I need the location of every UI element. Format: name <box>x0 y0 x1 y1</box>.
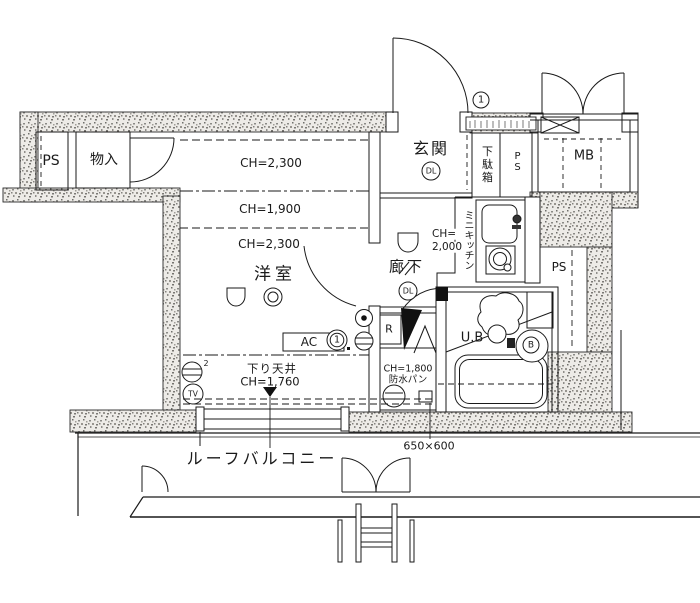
wall-right-block <box>540 192 612 247</box>
kitchen-sink <box>482 205 517 243</box>
outlet-count-label: 2 <box>203 360 208 368</box>
basin-faucet-icon <box>507 338 515 348</box>
black-square-icon <box>436 287 448 301</box>
hall-ch-line1: CH= <box>431 229 457 240</box>
sensor-icon-room <box>227 288 245 306</box>
laundry-ch-label: CH=1,800 <box>384 364 433 374</box>
balcony-doors <box>342 458 410 492</box>
vanity-counter <box>527 292 553 328</box>
roof-balcony-label: ルーフバルコニー <box>187 451 338 467</box>
pan-size-label: 650×600 <box>403 441 454 452</box>
ps-shaft-label: PS <box>512 151 522 173</box>
hallway-label: 廊下 <box>389 260 425 275</box>
mb-doors <box>542 73 624 114</box>
ladder-rail-outer-left <box>338 520 342 562</box>
entrance-door <box>393 38 468 113</box>
ch-mid-label: CH=1,900 <box>239 203 301 215</box>
sink-faucet-base-icon <box>512 225 521 229</box>
ps-left-label: PS <box>42 154 59 168</box>
dropped-ceiling-label: 下り天井 <box>247 363 297 375</box>
floor-plan: PS 物入 CH=2,300 CH=1,900 CH=2,300 洋室 玄関 D… <box>0 0 700 603</box>
dropped-ceiling-ch-label: CH=1,760 <box>240 376 299 388</box>
ac-note-label: 1 <box>334 335 340 345</box>
small-mark-icon <box>347 347 350 350</box>
fridge-note-label: R <box>385 324 393 335</box>
burner-knob-icon <box>504 264 511 271</box>
room-door-swing <box>304 246 356 306</box>
ladder-rail-right <box>392 504 397 562</box>
entrance-label: 玄関 <box>413 141 449 157</box>
ceiling-marker-icon <box>263 387 277 397</box>
balcony-side-door <box>142 466 168 492</box>
bathtub-inner <box>460 360 543 404</box>
vent-box <box>541 117 579 133</box>
outlet-left-icon <box>182 362 202 382</box>
laundry-pan-label: 防水パン <box>389 375 427 385</box>
bath-note-icon: B <box>523 337 540 354</box>
outlet-lines-icon <box>355 332 373 350</box>
entrance-downlight-icon: DL <box>422 162 441 181</box>
window-bracket-right <box>341 407 349 431</box>
ch-lower-label: CH=2,300 <box>238 238 300 250</box>
wall-step-left <box>3 188 180 202</box>
nameplate-box <box>466 117 536 130</box>
ps-right-label: PS <box>552 261 567 273</box>
wall-top <box>20 112 392 132</box>
ladder <box>338 504 414 562</box>
ladder-rung-1 <box>361 528 392 533</box>
sink-faucet-icon <box>513 215 521 223</box>
window-sliding <box>204 409 341 429</box>
casework <box>36 120 630 412</box>
ladder-rung-2 <box>361 542 392 547</box>
entrance-note-icon: 1 <box>473 92 490 109</box>
ch-upper-label: CH=2,300 <box>240 157 302 169</box>
ceiling-rose-icon <box>264 288 282 306</box>
room-name-label: 洋室 <box>254 267 296 284</box>
unit-bath-label: U.B <box>461 332 484 345</box>
wall-right-strip <box>587 247 612 352</box>
tv-outlet-label: TV <box>188 390 198 398</box>
laundry-outlet-box <box>419 391 432 402</box>
closet-door <box>130 138 174 182</box>
black-triangle-icon <box>401 308 422 350</box>
ac-label: AC <box>301 336 317 348</box>
door-jamb-left <box>386 112 398 132</box>
sensor-icon-hall <box>398 233 418 252</box>
mini-kitchen-label: ミニキッチン <box>462 210 472 270</box>
balcony-lines <box>75 433 700 517</box>
closet-label: 物入 <box>90 153 118 167</box>
floor-plan-drawing <box>0 0 700 603</box>
wall-kitchen-right <box>525 197 540 283</box>
ladder-rail-outer-right <box>410 520 414 562</box>
bathtub-outer <box>455 355 547 408</box>
open-triangle-icon <box>414 326 436 353</box>
ladder-rail-left <box>356 504 361 562</box>
wall-bottom-right <box>349 412 632 432</box>
toilet-seat-icon <box>488 325 506 343</box>
wall-room-left <box>163 196 180 412</box>
hall-ch-line2: 2,000 <box>431 242 463 253</box>
wall-hall-room-upper <box>369 132 380 243</box>
hallway-downlight-icon: DL <box>399 282 418 301</box>
window-bracket-left <box>196 407 204 431</box>
meter-box-label: MB <box>574 150 594 163</box>
wall-bottom-left <box>70 410 196 432</box>
shoe-cabinet-label: 下駄箱 <box>482 146 493 185</box>
